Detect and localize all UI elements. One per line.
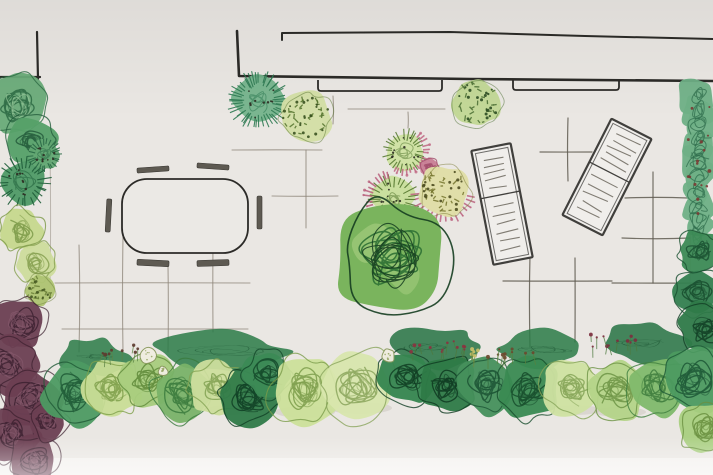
garden-plan-drawing [0, 0, 713, 475]
garden-plan-photo [0, 0, 713, 475]
photo-vignette [0, 0, 713, 475]
